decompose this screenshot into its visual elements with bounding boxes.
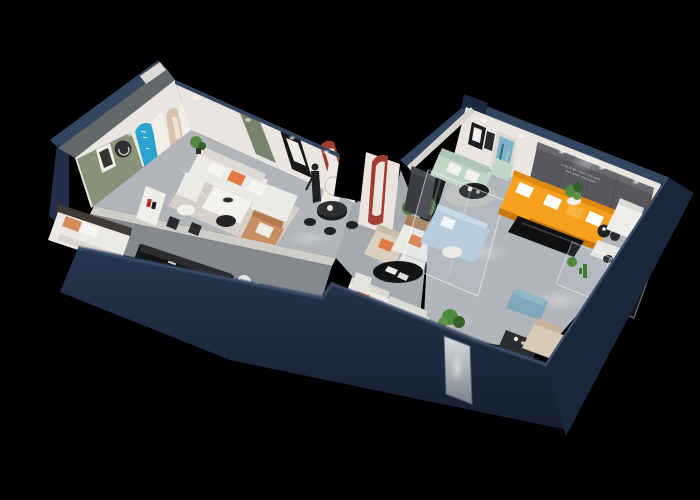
mirror-door (444, 336, 472, 404)
isometric-floorplan: LIFE IS NOT WHAT YOU HAVE BUT WHAT YOU E… (0, 0, 700, 500)
showroom-render: LIFE IS NOT WHAT YOU HAVE BUT WHAT YOU E… (0, 0, 700, 500)
cactus (583, 264, 587, 278)
display-table (442, 246, 462, 258)
oval-coffee-table (373, 261, 423, 283)
round-coffee-table (216, 215, 236, 227)
